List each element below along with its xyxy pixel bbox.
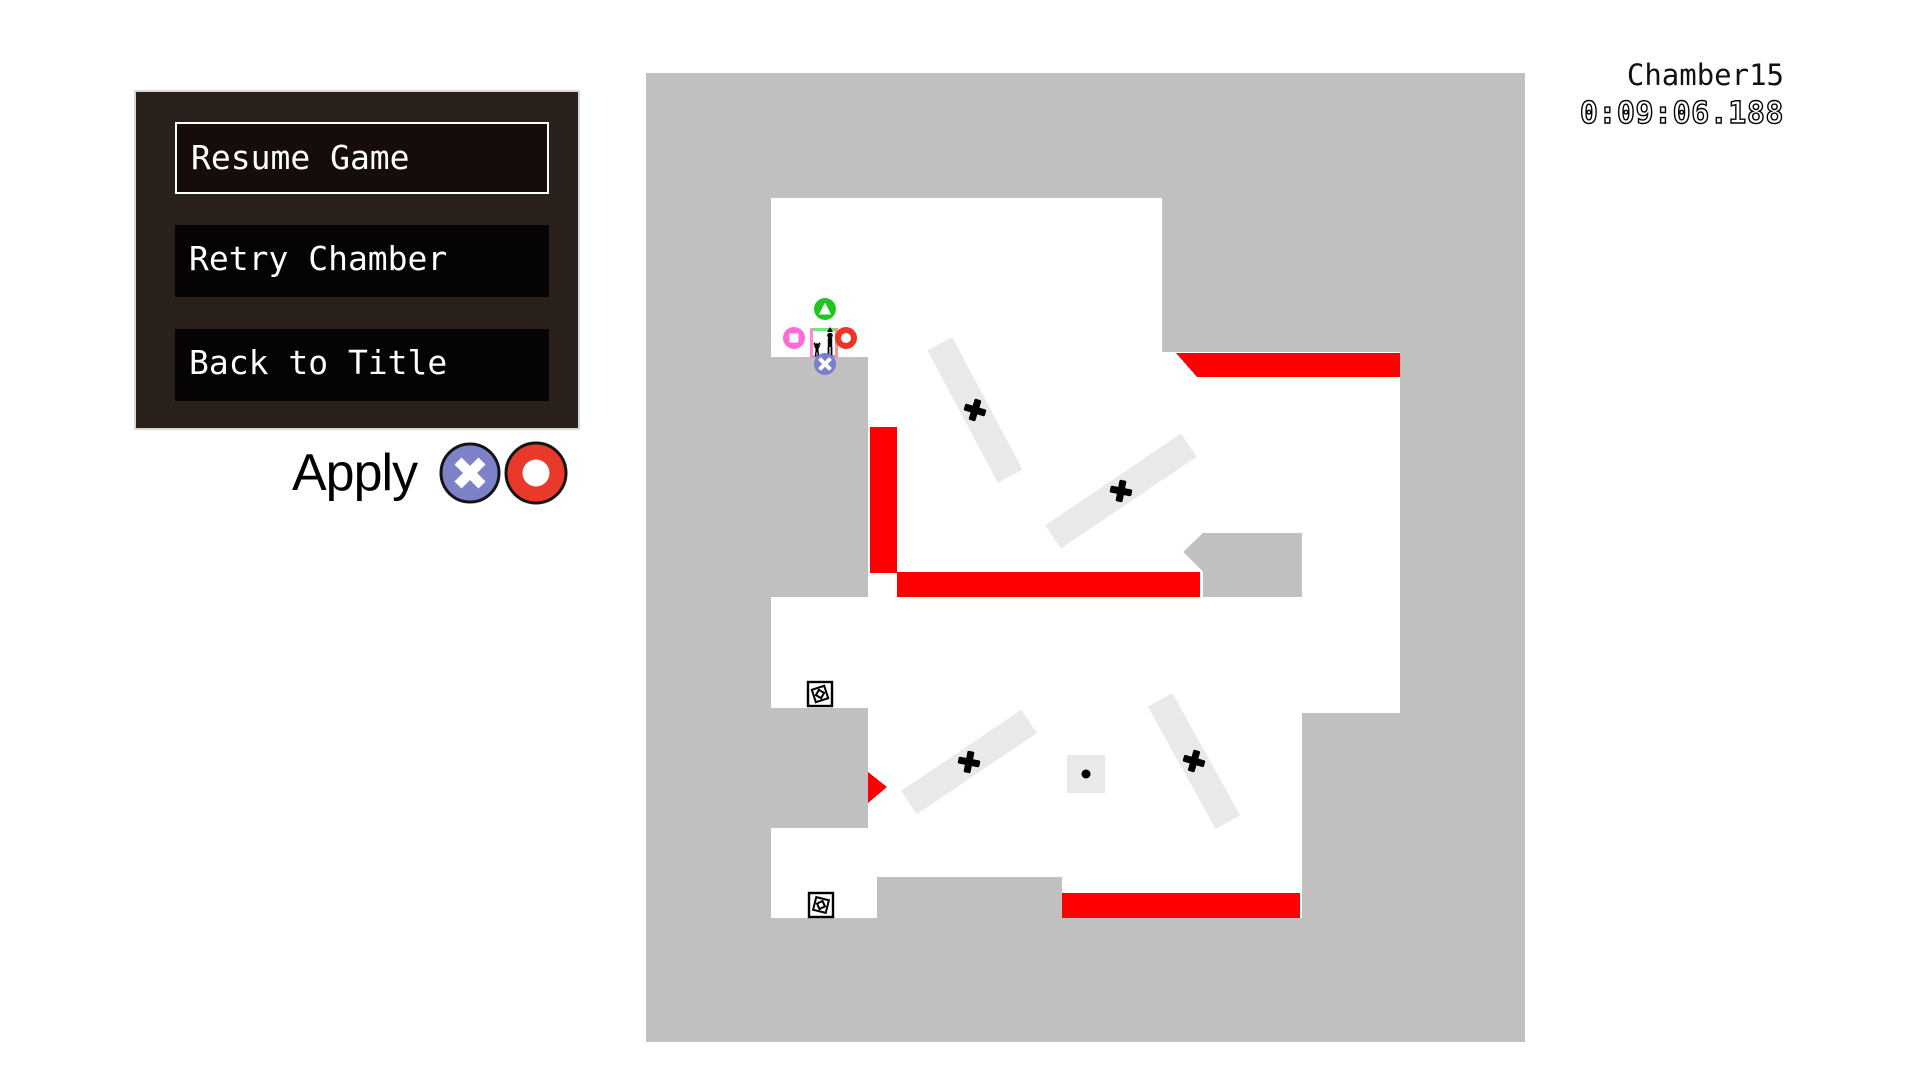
right-lower-block — [1302, 713, 1525, 918]
hazard-strip-bottom — [1062, 893, 1300, 918]
triangle-button-icon — [814, 298, 836, 320]
apply-prompt: Apply — [290, 437, 580, 509]
cross-button-icon — [437, 437, 503, 507]
spinning-item-box — [809, 893, 833, 917]
apply-label: Apply — [292, 443, 417, 503]
chamber-timer: 0:09:06.188 — [1580, 96, 1784, 131]
circle-button-icon — [502, 437, 570, 507]
hazard-strip-middle — [897, 572, 1200, 597]
dot-block — [1067, 755, 1105, 793]
pause-menu-panel: Resume Game Retry Chamber Back to Title — [134, 90, 580, 430]
menu-item-back-to-title[interactable]: Back to Title — [175, 329, 549, 401]
square-button-icon — [783, 327, 805, 349]
hazard-strip-top-right — [1176, 353, 1400, 377]
hud: Chamber15 0:09:06.188 — [1580, 58, 1784, 131]
menu-item-resume-game[interactable]: Resume Game — [175, 122, 549, 194]
cross-button-icon — [814, 353, 836, 375]
left-step-block — [771, 708, 868, 828]
spinning-item-box — [808, 682, 832, 706]
player-ledge-block — [771, 357, 868, 597]
hazard-strip-vertical — [870, 427, 897, 573]
circle-button-icon — [835, 327, 857, 349]
chamber-label: Chamber15 — [1580, 58, 1784, 92]
game-field — [646, 73, 1525, 1042]
bottom-step-block — [877, 877, 1062, 918]
game-screen: Resume Game Retry Chamber Back to Title … — [0, 0, 1920, 1080]
menu-item-retry-chamber[interactable]: Retry Chamber — [175, 225, 549, 297]
